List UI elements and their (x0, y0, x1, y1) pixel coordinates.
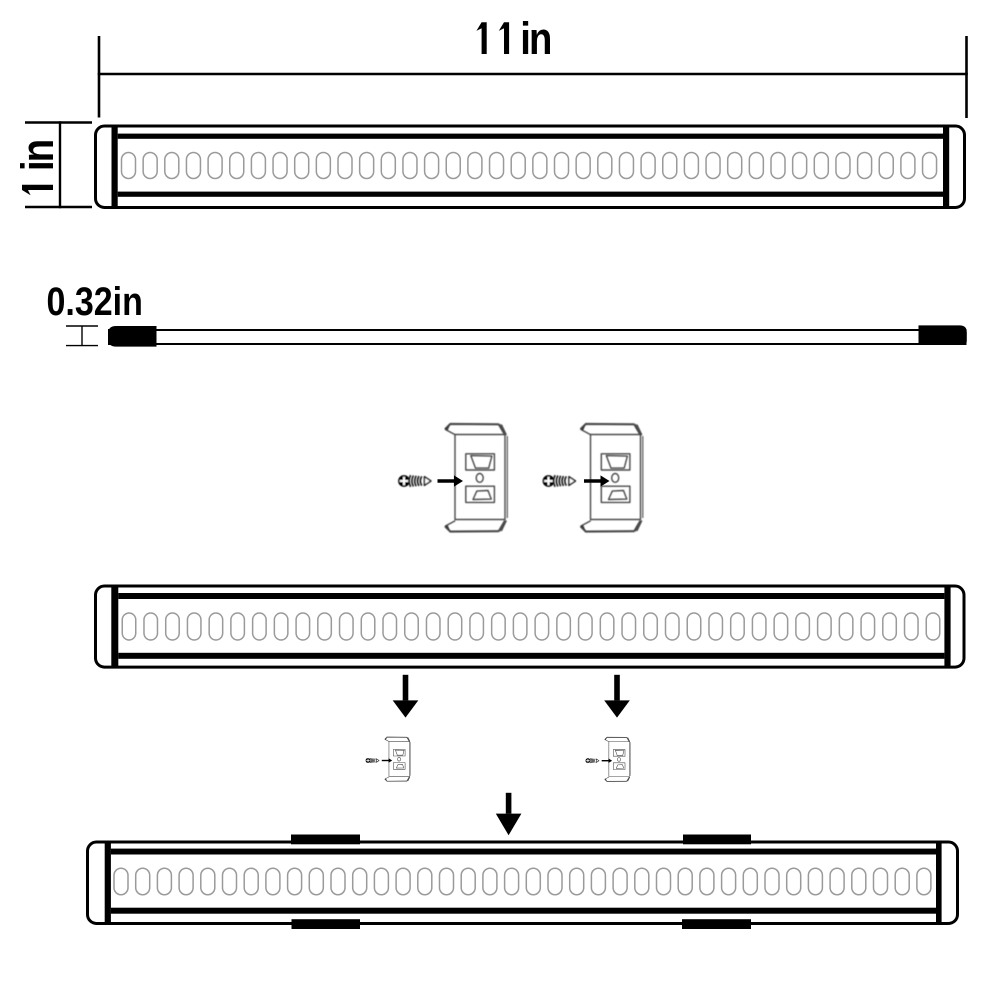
svg-text:in: in (12, 141, 63, 171)
svg-text:0.32in: 0.32in (47, 278, 143, 323)
svg-text:in: in (520, 13, 550, 64)
